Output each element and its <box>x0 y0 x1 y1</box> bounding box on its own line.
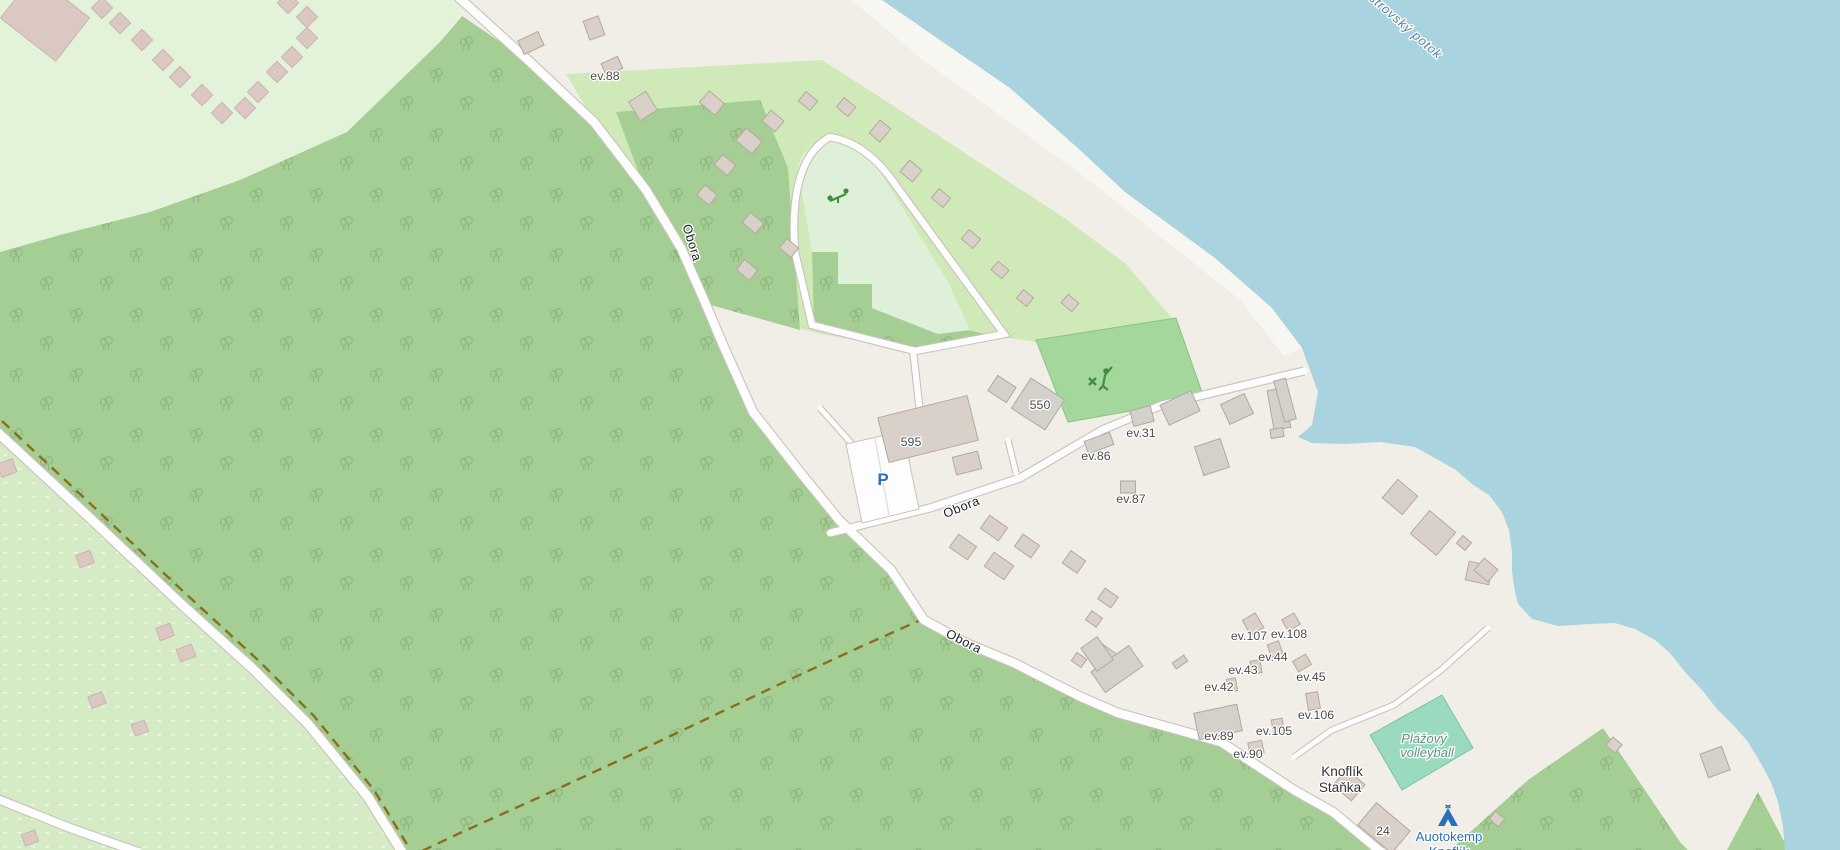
house-number-ev107: ev.107 <box>1231 629 1267 643</box>
house-number-ev44: ev.44 <box>1258 650 1287 664</box>
house-number-ev43: ev.43 <box>1228 663 1257 677</box>
house-number-ev106: ev.106 <box>1298 708 1334 722</box>
house-number-ev88: ev.88 <box>590 69 619 83</box>
house-number-ev86: ev.86 <box>1081 449 1110 463</box>
campsite-label-line1: Auotokemp <box>1416 829 1483 844</box>
house-number-ev87: ev.87 <box>1116 492 1145 506</box>
building <box>1270 427 1284 438</box>
house-number-24: 24 <box>1376 824 1390 838</box>
pitch-label-line2: volleyball <box>1400 745 1455 760</box>
map-viewport[interactable]: ev.88595550ev.31ev.86ev.87ev.107ev.108ev… <box>0 0 1840 850</box>
place-label-stanka: Staňka <box>1319 780 1362 795</box>
house-number-ev42: ev.42 <box>1204 680 1233 694</box>
map-canvas[interactable]: ev.88595550ev.31ev.86ev.87ev.107ev.108ev… <box>0 0 1840 850</box>
house-number-ev45: ev.45 <box>1296 670 1325 684</box>
place-label-knoflik: Knoflík <box>1321 764 1363 779</box>
house-number-ev89: ev.89 <box>1204 729 1233 743</box>
pitch-label-line1: Plážový <box>1401 731 1448 746</box>
house-number-ev105: ev.105 <box>1256 724 1292 738</box>
house-number-ev90: ev.90 <box>1233 747 1262 761</box>
house-number-ev108: ev.108 <box>1271 627 1307 641</box>
house-number-ev31: ev.31 <box>1126 426 1155 440</box>
campsite-label-line2: Knoflík <box>1429 844 1470 850</box>
house-number-595: 595 <box>901 435 922 449</box>
parking-icon: P <box>877 470 888 489</box>
house-number-550: 550 <box>1030 398 1051 412</box>
